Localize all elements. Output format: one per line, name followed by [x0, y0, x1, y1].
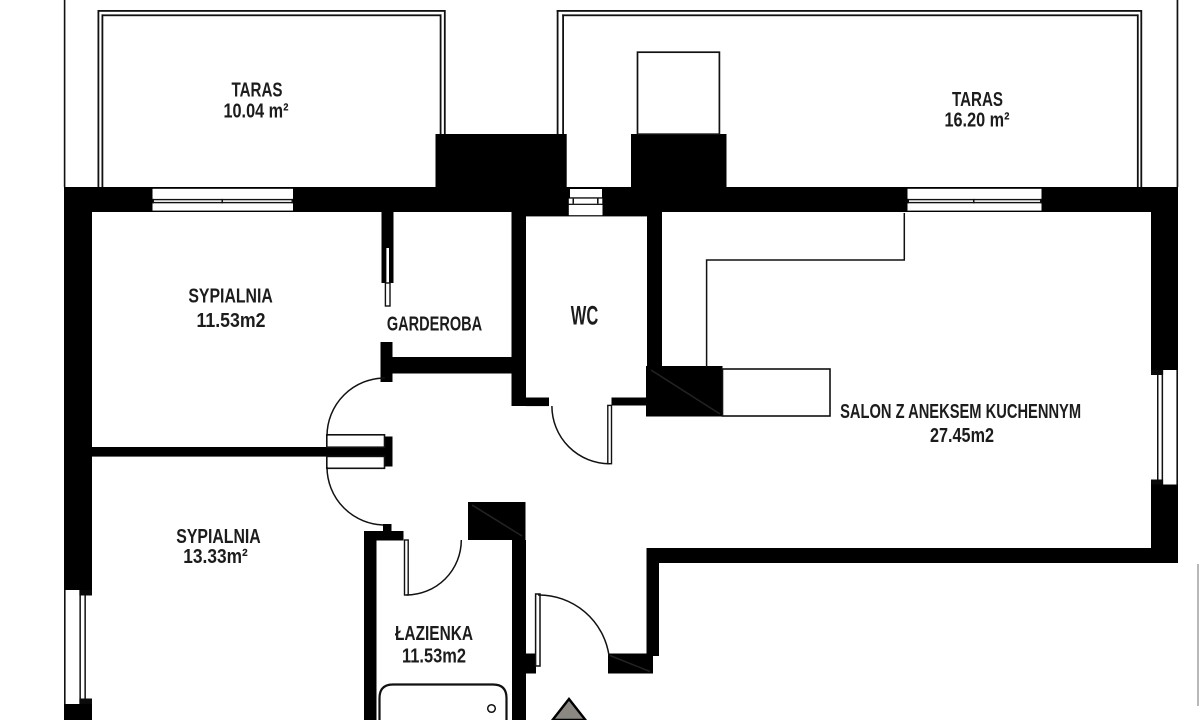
- svg-text:WC: WC: [571, 301, 599, 331]
- svg-text:10.04 m²: 10.04 m²: [224, 99, 289, 122]
- svg-text:11.53m2: 11.53m2: [197, 309, 266, 332]
- svg-text:TARAS: TARAS: [952, 88, 1003, 111]
- svg-text:TARAS: TARAS: [232, 79, 283, 102]
- svg-text:27.45m2: 27.45m2: [930, 424, 994, 447]
- svg-text:13.33m²: 13.33m²: [183, 545, 248, 568]
- svg-text:SYPIALNIA: SYPIALNIA: [188, 285, 273, 308]
- svg-text:SALON Z ANEKSEM KUCHENNYM: SALON Z ANEKSEM KUCHENNYM: [840, 400, 1081, 423]
- svg-text:GARDEROBA: GARDEROBA: [387, 312, 482, 335]
- svg-text:16.20 m²: 16.20 m²: [945, 109, 1010, 132]
- svg-text:ŁAZIENKA: ŁAZIENKA: [395, 622, 473, 645]
- svg-text:11.53m2: 11.53m2: [402, 645, 466, 668]
